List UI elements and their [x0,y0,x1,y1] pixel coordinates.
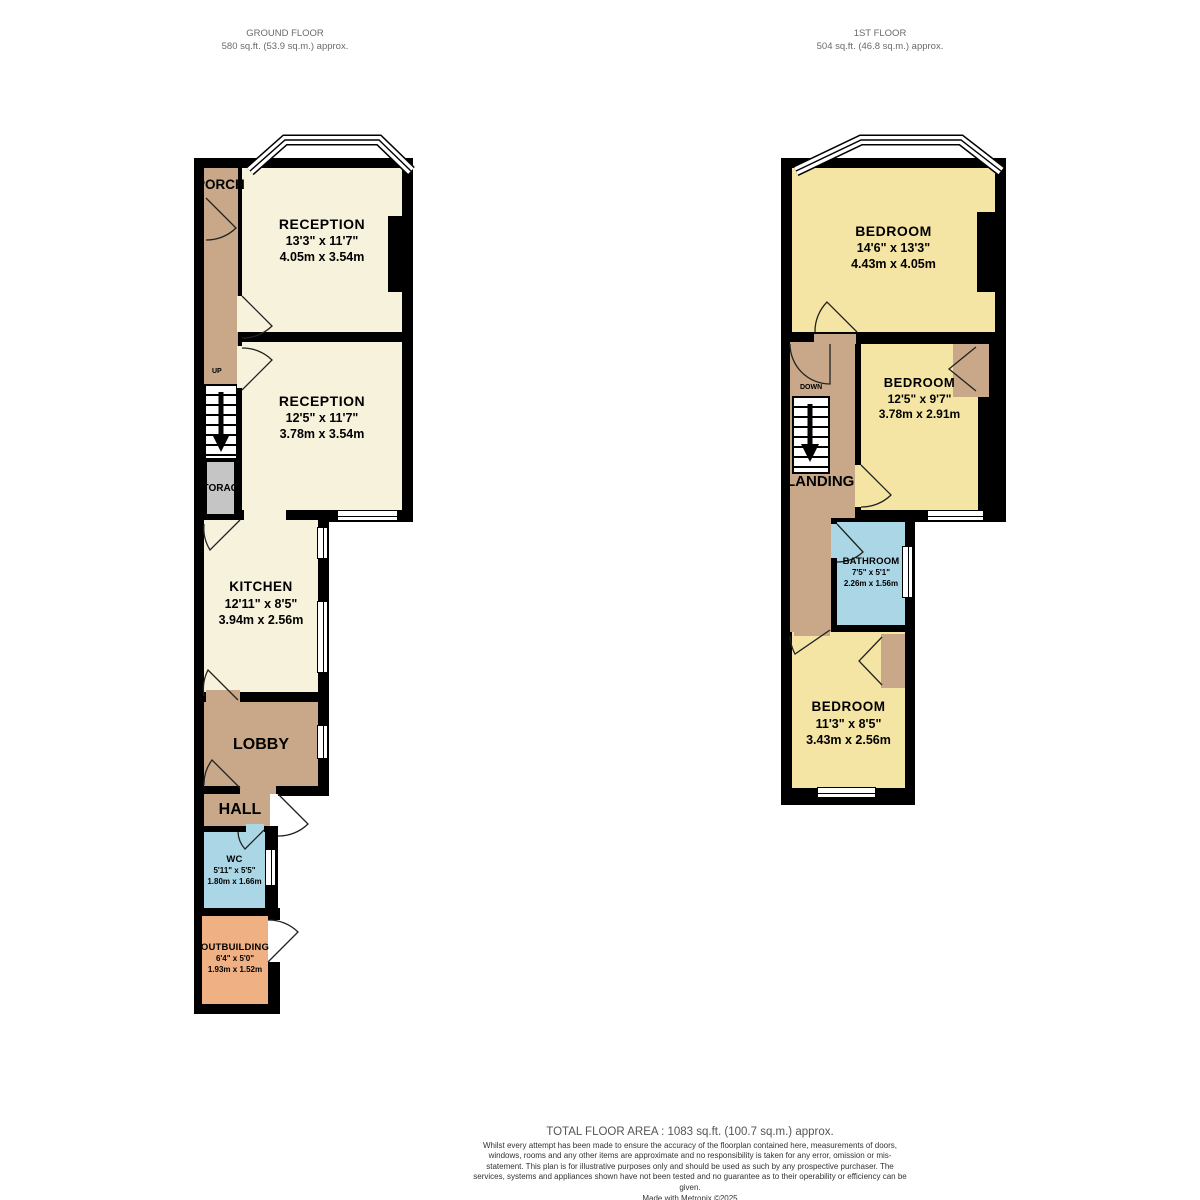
reception1-name: RECEPTION [242,215,402,233]
bathroom-imperial: 7'5" x 5'1" [837,568,905,578]
total-floor-area: TOTAL FLOOR AREA : 1083 sq.ft. (100.7 sq… [410,1126,970,1138]
bathroom-metric: 2.26m x 1.56m [837,579,905,589]
reception1-metric: 4.05m x 3.54m [242,249,402,265]
reception2-name: RECEPTION [242,392,402,410]
door-reception2 [242,348,272,390]
bedroom1-name: BEDROOM [792,222,995,240]
door-kitchen-lobby [203,670,238,700]
door-bedroom1 [815,302,857,332]
reception1-label: RECEPTION 13'3" x 11'7" 4.05m x 3.54m [242,215,402,266]
kitchen-imperial: 12'11" x 8'5" [204,596,318,612]
floorplan-canvas: GROUND FLOOR 580 sq.ft. (53.9 sq.m.) app… [0,0,1200,1200]
bathroom-label: BATHROOM 7'5" x 5'1" 2.26m x 1.56m [837,556,905,589]
reception2-metric: 3.78m x 3.54m [242,426,402,442]
kitchen-label: KITCHEN 12'11" x 8'5" 3.94m x 2.56m [204,578,318,628]
bedroom3-name: BEDROOM [792,698,905,716]
wc-metric: 1.80m x 1.66m [204,877,265,887]
first-floor-header: 1ST FLOOR 504 sq.ft. (46.8 sq.m.) approx… [745,28,1015,54]
wc-label: WC 5'11" x 5'5" 1.80m x 1.66m [204,854,265,887]
bifold-door-bedroom3-cupboard [859,637,882,685]
door-lobby-hall [204,760,240,788]
door-porch-front [206,198,236,240]
bedroom2-name: BEDROOM [861,375,978,392]
first-floor-title: 1ST FLOOR [745,28,1015,41]
wc-imperial: 5'11" x 5'5" [204,866,265,876]
door-wc [238,830,264,849]
ground-floor-header: GROUND FLOOR 580 sq.ft. (53.9 sq.m.) app… [150,28,420,54]
bedroom3-metric: 3.43m x 2.56m [792,732,905,748]
first-floor-area: 504 sq.ft. (46.8 sq.m.) approx. [745,41,1015,54]
outbuilding-label: OUTBUILDING 6'4" x 5'0" 1.93m x 1.52m [200,942,270,975]
door-bedroom3 [790,630,830,654]
door-hall-front [278,794,308,836]
door-bedroom2 [861,465,891,507]
footer: TOTAL FLOOR AREA : 1083 sq.ft. (100.7 sq… [410,1126,970,1200]
outbuilding-imperial: 6'4" x 5'0" [200,954,270,964]
ground-floor-title: GROUND FLOOR [150,28,420,41]
reception1-imperial: 13'3" x 11'7" [242,233,402,249]
bedroom2-imperial: 12'5" x 9'7" [861,392,978,408]
lobby-label: LOBBY [204,735,318,756]
bedroom1-imperial: 14'6" x 13'3" [792,240,995,256]
plan-linework [0,0,1200,1200]
bedroom1-metric: 4.43m x 4.05m [792,256,995,272]
bedroom1-label: BEDROOM 14'6" x 13'3" 4.43m x 4.05m [792,222,995,273]
door-kitchen-top [204,520,240,550]
down-label: DOWN [800,384,822,391]
landing-label: LANDING [786,472,854,492]
bay-window-ground [250,140,411,171]
bathroom-name: BATHROOM [837,556,905,568]
door-reception1 [242,296,272,338]
stairs-arrow-ground [212,392,230,452]
reception2-imperial: 12'5" x 11'7" [242,410,402,426]
kitchen-metric: 3.94m x 2.56m [204,612,318,628]
bedroom2-metric: 3.78m x 2.91m [861,407,978,423]
bedroom3-imperial: 11'3" x 8'5" [792,716,905,732]
metropix-credit: Made with Metropix ©2025 [410,1194,970,1200]
ground-floor-area: 580 sq.ft. (53.9 sq.m.) approx. [150,41,420,54]
up-label: UP [212,368,222,375]
door-outbuilding [268,920,298,962]
bedroom3-label: BEDROOM 11'3" x 8'5" 3.43m x 2.56m [792,698,905,748]
door-landing-top [790,344,830,384]
kitchen-name: KITCHEN [204,578,318,596]
stairs-arrow-first [801,404,819,462]
outbuilding-metric: 1.93m x 1.52m [200,965,270,975]
wc-name: WC [204,854,265,866]
bedroom2-label: BEDROOM 12'5" x 9'7" 3.78m x 2.91m [861,375,978,423]
outbuilding-name: OUTBUILDING [200,942,270,954]
hall-label: HALL [200,800,280,821]
disclaimer-text: Whilst every attempt has been made to en… [470,1141,910,1193]
reception2-label: RECEPTION 12'5" x 11'7" 3.78m x 3.54m [242,392,402,443]
porch-label: PORCH [196,176,245,194]
bay-window-first [796,140,1001,171]
